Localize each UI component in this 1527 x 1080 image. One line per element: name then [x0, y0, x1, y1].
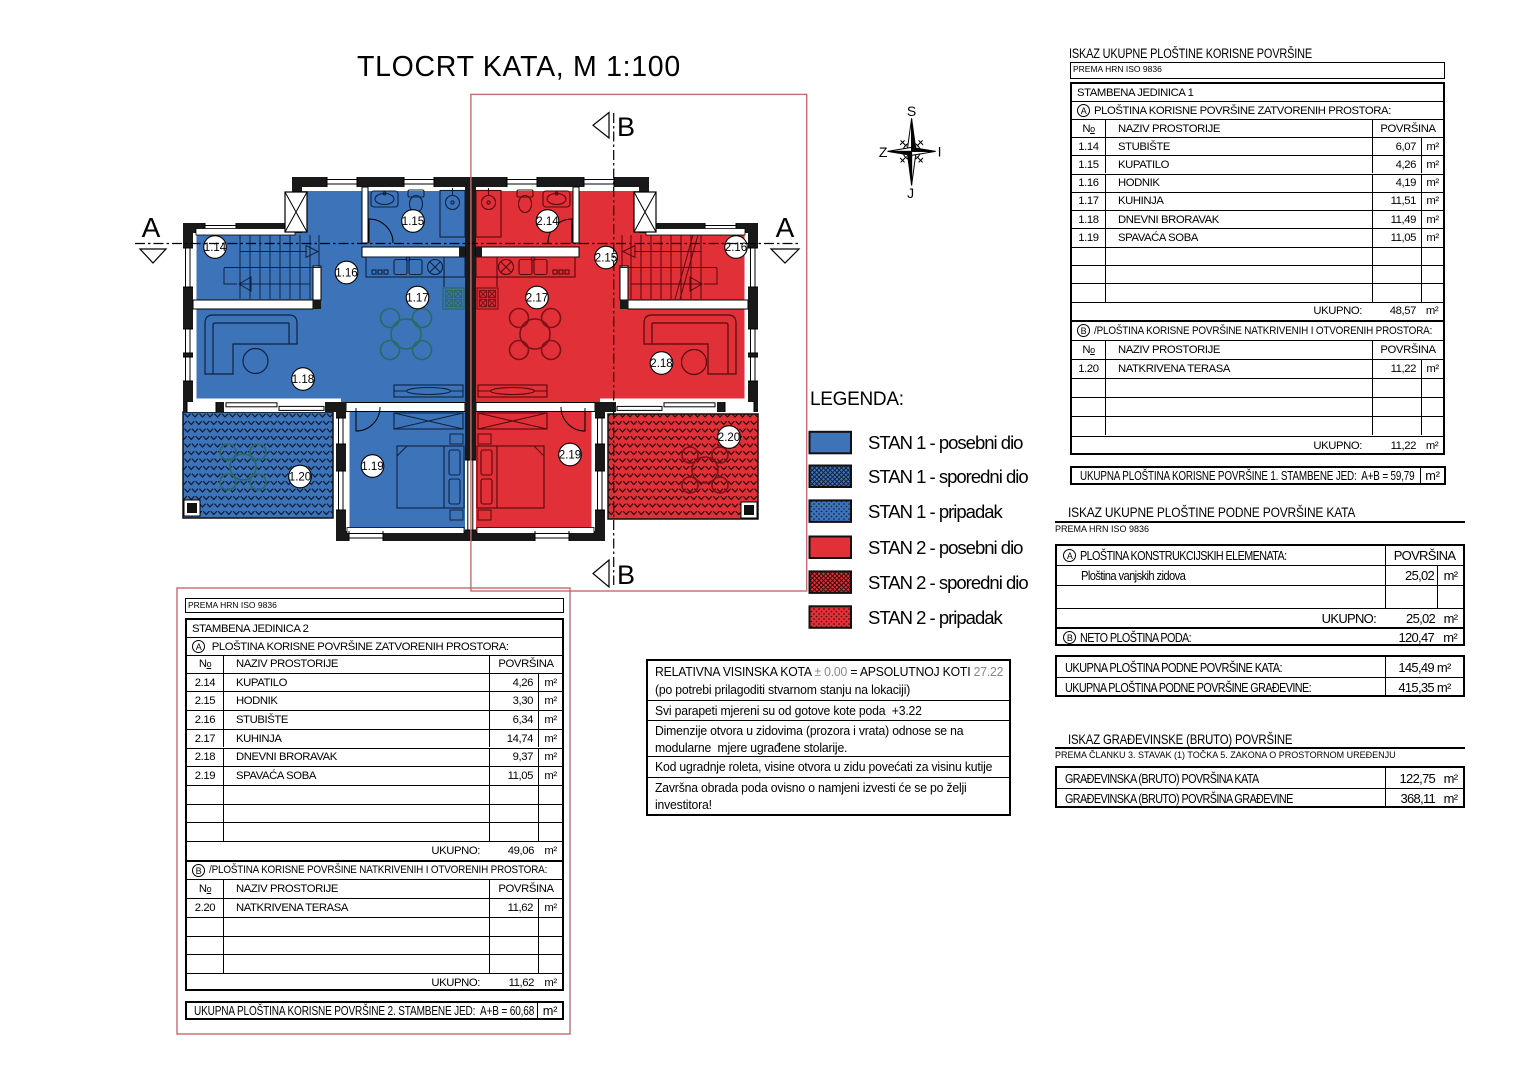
- svg-text:Z: Z: [879, 144, 888, 160]
- svg-text:S: S: [907, 103, 916, 119]
- svg-text:I: I: [938, 144, 942, 160]
- svg-text:1.18: 1.18: [292, 374, 314, 386]
- svg-text:1.20: 1.20: [289, 472, 311, 484]
- svg-text:2.14: 2.14: [536, 216, 559, 228]
- svg-text:B: B: [617, 560, 635, 590]
- svg-text:2.20: 2.20: [718, 432, 740, 444]
- svg-text:1.15: 1.15: [402, 216, 424, 228]
- svg-text:1.19: 1.19: [361, 461, 383, 473]
- svg-text:1.17: 1.17: [406, 293, 428, 305]
- svg-text:J: J: [907, 185, 914, 201]
- svg-text:2.18: 2.18: [650, 358, 672, 370]
- svg-text:B: B: [617, 112, 635, 142]
- svg-text:2.17: 2.17: [526, 293, 548, 305]
- svg-text:A: A: [142, 212, 161, 243]
- svg-text:A: A: [776, 212, 795, 243]
- svg-text:1.16: 1.16: [335, 268, 357, 280]
- svg-text:2.19: 2.19: [559, 450, 581, 462]
